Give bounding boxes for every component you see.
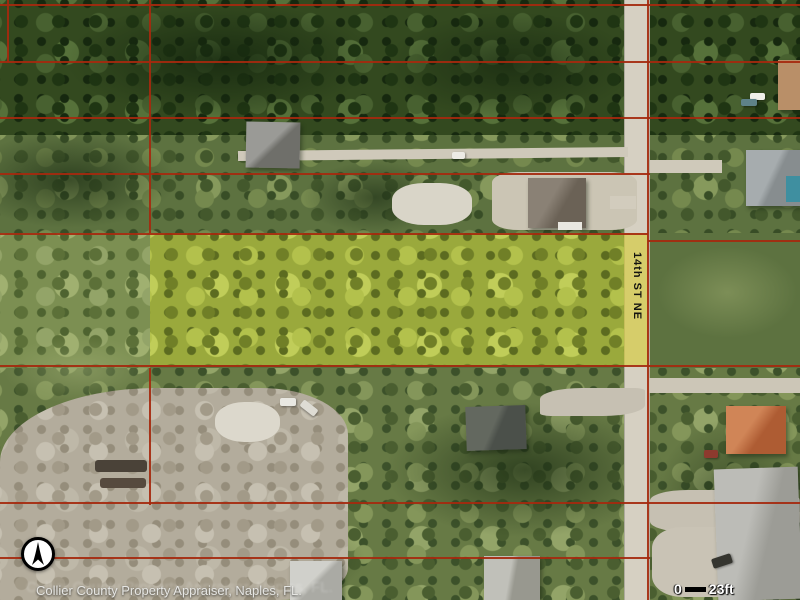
sand-patch (215, 402, 280, 442)
highlighted-parcel-vegetation (150, 233, 624, 365)
north-arrow-icon (21, 537, 55, 571)
map-canvas[interactable]: 14th ST NE Collier County Property Appra… (0, 0, 800, 600)
cross-road (648, 378, 800, 393)
building (246, 122, 301, 169)
street-label: 14th ST NE (631, 252, 643, 320)
vehicle (452, 152, 465, 159)
parcel-line-v (149, 368, 151, 505)
sand-patch (392, 183, 472, 225)
parcel-line-h (0, 365, 800, 367)
building (465, 405, 526, 451)
building (484, 556, 540, 600)
highlighted-parcel[interactable] (150, 233, 648, 365)
parcel-line-v (149, 0, 151, 233)
tree-clump (60, 0, 380, 120)
building (778, 60, 800, 110)
driveway (610, 196, 636, 209)
driveway (650, 160, 722, 173)
building (714, 467, 800, 600)
parcel-line-v (7, 0, 9, 62)
parcel-line-h (0, 173, 650, 175)
scale-bar: 0 23ft (674, 581, 734, 597)
attribution-text: Collier County Property Appraiser, Naple… (36, 583, 302, 598)
vehicle (280, 398, 296, 406)
north-arrow-glyph (24, 540, 52, 568)
tree-clump (380, 10, 640, 120)
building-orange-roof (726, 406, 786, 454)
parcel-line-h (0, 557, 650, 559)
parcel-line-h (0, 61, 800, 63)
parcel-line-v (647, 0, 649, 600)
driveway (540, 388, 645, 416)
parcel-line-h (648, 240, 800, 242)
swimming-pool (786, 176, 800, 202)
parcel-line-h (0, 117, 800, 119)
scale-bar-segment (685, 587, 706, 592)
parcel-line-h (0, 502, 800, 504)
vehicle (741, 99, 757, 106)
debris-pile (100, 478, 146, 488)
parcel-line-h (0, 4, 800, 6)
building (528, 178, 586, 228)
vehicle (704, 450, 718, 458)
grass-patch (655, 245, 800, 340)
building-porch (558, 222, 582, 230)
scale-end-label: 23ft (709, 581, 734, 597)
parcel-line-h (0, 233, 648, 235)
debris-pile (95, 460, 147, 472)
scale-start-label: 0 (674, 581, 682, 597)
tree-clump (0, 130, 180, 230)
